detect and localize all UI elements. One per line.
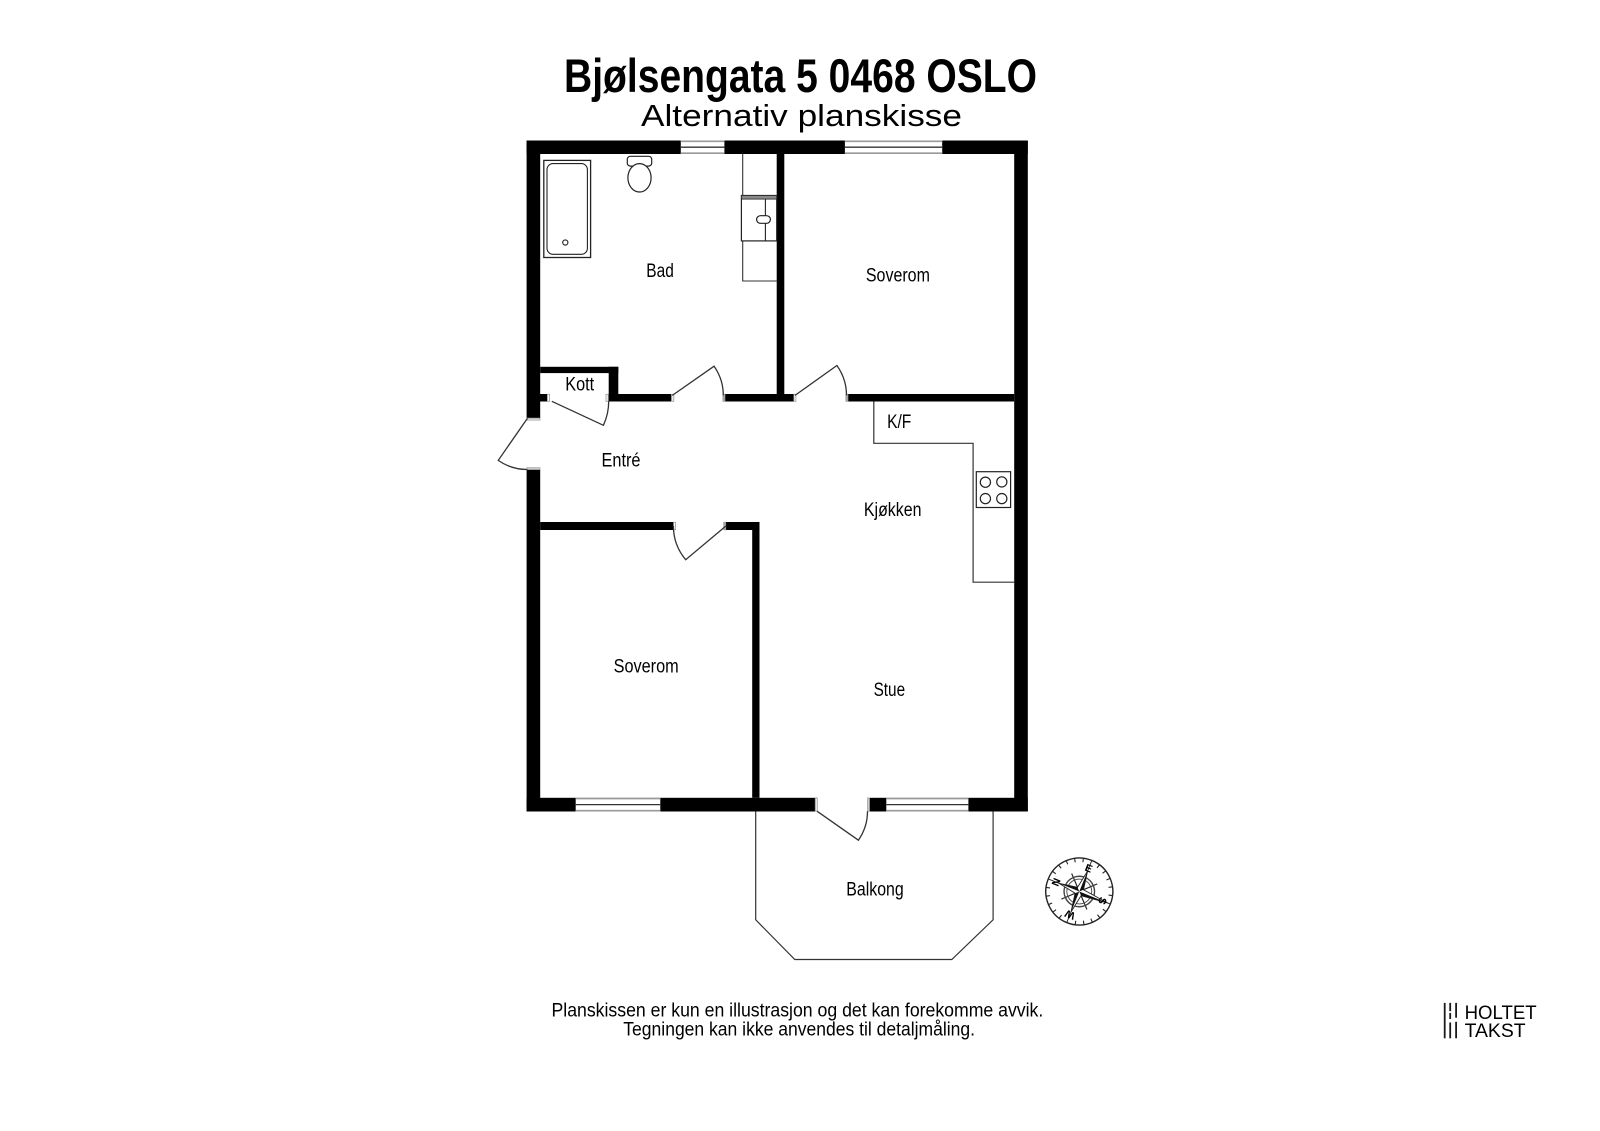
svg-text:K/F: K/F bbox=[887, 412, 911, 433]
svg-text:Planskissen er kun en illustra: Planskissen er kun en illustrasjon og de… bbox=[552, 1001, 1044, 1022]
svg-text:Soverom: Soverom bbox=[614, 657, 679, 678]
svg-text:TAKST: TAKST bbox=[1465, 1021, 1526, 1042]
svg-text:Balkong: Balkong bbox=[846, 879, 903, 900]
svg-text:Bjølsengata 5 0468 OSLO: Bjølsengata 5 0468 OSLO bbox=[564, 49, 1037, 102]
svg-text:Kott: Kott bbox=[565, 374, 595, 395]
svg-text:Kjøkken: Kjøkken bbox=[864, 500, 922, 521]
svg-text:Alternativ planskisse: Alternativ planskisse bbox=[641, 98, 962, 133]
svg-text:Soverom: Soverom bbox=[866, 265, 930, 286]
svg-text:Tegningen kan ikke anvendes ti: Tegningen kan ikke anvendes til detaljmå… bbox=[623, 1020, 975, 1041]
svg-text:Stue: Stue bbox=[874, 680, 906, 701]
svg-text:Entré: Entré bbox=[602, 450, 641, 471]
svg-text:Bad: Bad bbox=[646, 261, 674, 282]
